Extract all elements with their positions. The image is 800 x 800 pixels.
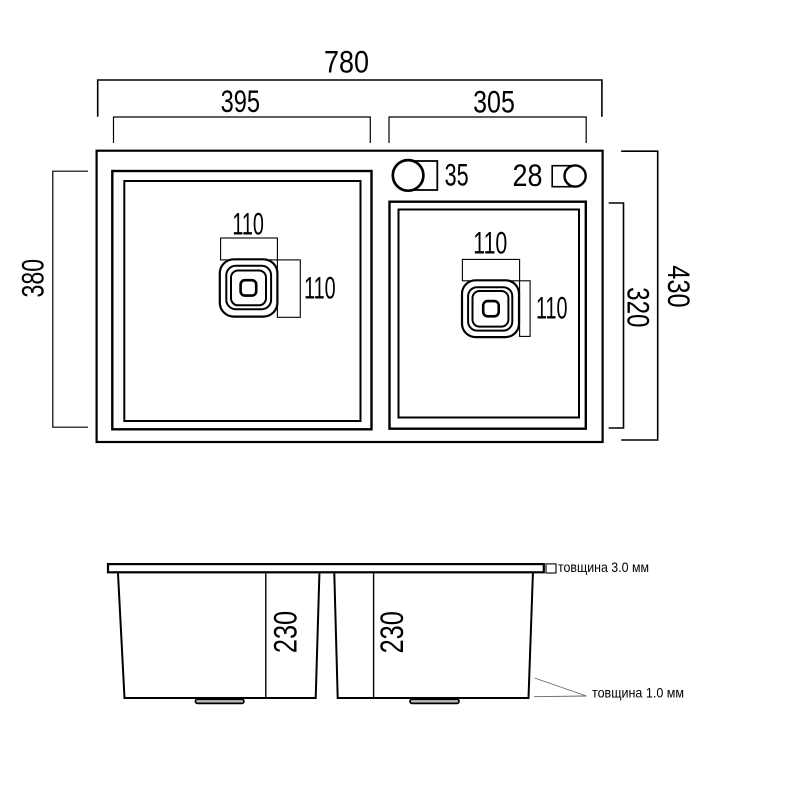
svg-text:110: 110 [232, 205, 264, 241]
svg-text:товщина 1.0 мм: товщина 1.0 мм [592, 685, 684, 701]
svg-text:35: 35 [445, 156, 469, 192]
svg-text:305: 305 [473, 83, 515, 119]
svg-text:230: 230 [268, 611, 304, 653]
svg-text:320: 320 [621, 287, 657, 327]
svg-text:395: 395 [221, 83, 260, 119]
svg-text:230: 230 [374, 611, 410, 653]
svg-text:товщина 3.0 мм: товщина 3.0 мм [558, 559, 649, 575]
svg-text:110: 110 [473, 224, 507, 260]
svg-text:28: 28 [513, 157, 543, 193]
svg-text:110: 110 [536, 290, 568, 326]
svg-text:380: 380 [15, 259, 51, 298]
svg-text:110: 110 [304, 269, 336, 305]
svg-text:430: 430 [661, 265, 697, 307]
svg-text:780: 780 [324, 43, 369, 79]
